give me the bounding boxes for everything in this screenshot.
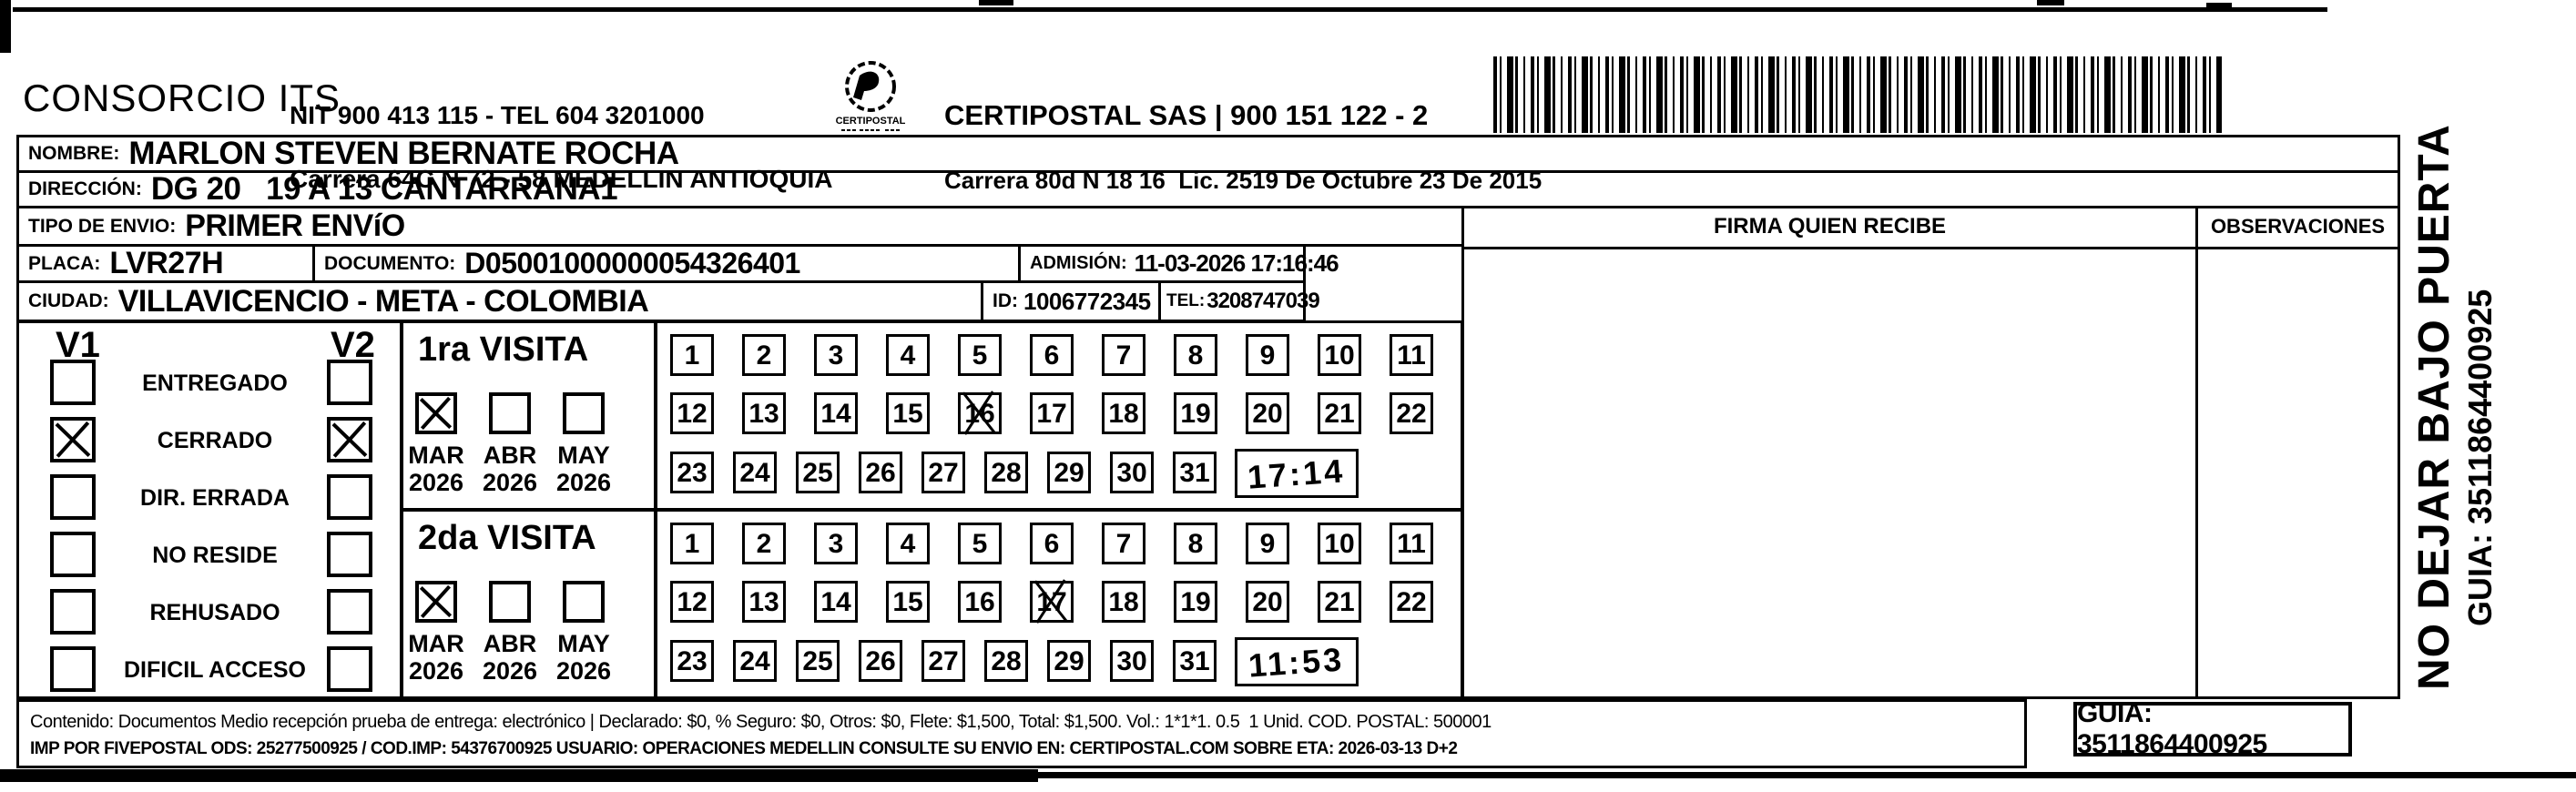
month-year: 2026 bbox=[481, 469, 539, 497]
visit2-day-8[interactable]: 8 bbox=[1174, 523, 1217, 564]
placa-cell: PLACA: LVR27H bbox=[16, 244, 315, 283]
status-row-dir-errada: DIR. ERRADA bbox=[19, 474, 400, 522]
firma-signature-area[interactable] bbox=[1464, 249, 2195, 696]
visit2-day-22[interactable]: 22 bbox=[1390, 581, 1433, 623]
placa-value: LVR27H bbox=[109, 246, 223, 281]
firma-header: FIRMA QUIEN RECIBE bbox=[1464, 208, 2195, 249]
v1-checkbox-rehusado[interactable] bbox=[50, 589, 96, 635]
observaciones-column: OBSERVACIONES bbox=[2195, 206, 2400, 699]
direccion-value: DG 20 19 A 13 CANTARRANA1 bbox=[151, 171, 617, 208]
ciudad-value: VILLAVICENCIO - META - COLOMBIA bbox=[118, 284, 649, 320]
visit1-day-16[interactable]: 16 bbox=[958, 392, 1002, 434]
footer-box: Contenido: Documentos Medio recepción pr… bbox=[16, 699, 2027, 768]
visit1-day-4[interactable]: 4 bbox=[886, 334, 930, 376]
month-year: 2026 bbox=[481, 657, 539, 685]
month-year: 2026 bbox=[407, 469, 465, 497]
tel-value: 3208747039 bbox=[1207, 289, 1319, 314]
visit1-panel: 1ra VISITA MAR2026ABR2026MAY2026 bbox=[401, 320, 657, 511]
visit2-day-23[interactable]: 23 bbox=[670, 640, 714, 682]
visit2-day-4[interactable]: 4 bbox=[886, 523, 930, 564]
v2-checkbox-entregado[interactable] bbox=[327, 360, 372, 405]
logo-caption: CERTIPOSTAL bbox=[836, 116, 906, 127]
visit2-day-1[interactable]: 1 bbox=[670, 523, 714, 564]
visit1-day-29[interactable]: 29 bbox=[1047, 452, 1091, 493]
status-label-dificil-acceso: DIFICIL ACCESO bbox=[106, 646, 324, 694]
visit2-day-11[interactable]: 11 bbox=[1390, 523, 1433, 564]
visit2-day-21[interactable]: 21 bbox=[1318, 581, 1361, 623]
visit2-month-checkbox-abr[interactable] bbox=[489, 581, 531, 623]
documento-label: DOCUMENTO: bbox=[324, 253, 455, 275]
visit1-day-26[interactable]: 26 bbox=[859, 452, 902, 493]
scan-artifact bbox=[979, 0, 1013, 5]
visit1-day-25[interactable]: 25 bbox=[796, 452, 840, 493]
month-label: MAR bbox=[407, 630, 465, 658]
month-label: MAY bbox=[555, 630, 613, 658]
status-row-dificil-acceso: DIFICIL ACCESO bbox=[19, 646, 400, 694]
visit2-day-2[interactable]: 2 bbox=[742, 523, 786, 564]
visit2-title: 2da VISITA bbox=[418, 519, 596, 558]
visit2-day-10[interactable]: 10 bbox=[1318, 523, 1361, 564]
visit1-title: 1ra VISITA bbox=[418, 330, 588, 370]
status-label-entregado: ENTREGADO bbox=[106, 360, 324, 407]
direccion-row: DIRECCIÓN: DG 20 19 A 13 CANTARRANA1 bbox=[16, 170, 2400, 208]
status-row-cerrado: CERRADO bbox=[19, 417, 400, 464]
visit1-day-15[interactable]: 15 bbox=[886, 392, 930, 434]
visit2-calendar: 1234567891011121314151617181920212223242… bbox=[655, 509, 1463, 699]
visit2-day-26[interactable]: 26 bbox=[859, 640, 902, 682]
observaciones-area[interactable] bbox=[2198, 249, 2398, 696]
month-label: MAY bbox=[555, 442, 613, 470]
v1-checkbox-dificil-acceso[interactable] bbox=[50, 646, 96, 692]
visit1-day-1[interactable]: 1 bbox=[670, 334, 714, 376]
visit2-day-27[interactable]: 27 bbox=[921, 640, 965, 682]
visit2-day-17[interactable]: 17 bbox=[1030, 581, 1074, 623]
nombre-row: NOMBRE: MARLON STEVEN BERNATE ROCHA bbox=[16, 135, 2400, 173]
status-row-no-reside: NO RESIDE bbox=[19, 532, 400, 579]
visit1-day-30[interactable]: 30 bbox=[1110, 452, 1154, 493]
tipo-envio-value: PRIMER ENVíO bbox=[185, 208, 404, 244]
footer-content-line: Contenido: Documentos Medio recepción pr… bbox=[30, 707, 2013, 736]
v2-checkbox-no-reside[interactable] bbox=[327, 532, 372, 577]
status-label-rehusado: REHUSADO bbox=[106, 589, 324, 636]
ciudad-label: CIUDAD: bbox=[28, 290, 109, 312]
v1-checkbox-dir-errada[interactable] bbox=[50, 474, 96, 520]
v1-checkbox-entregado[interactable] bbox=[50, 360, 96, 405]
visit1-day-3[interactable]: 3 bbox=[814, 334, 858, 376]
status-panel: V1 V2 ENTREGADOCERRADODIR. ERRADANO RESI… bbox=[16, 320, 402, 699]
visit2-day-20[interactable]: 20 bbox=[1246, 581, 1289, 623]
visit1-day-18[interactable]: 18 bbox=[1102, 392, 1145, 434]
nombre-value: MARLON STEVEN BERNATE ROCHA bbox=[128, 136, 678, 172]
bottom-bar-left bbox=[0, 769, 1038, 782]
tipo-envio-label: TIPO DE ENVIO: bbox=[28, 216, 176, 238]
month-year: 2026 bbox=[555, 469, 613, 497]
carrier-name-line: CERTIPOSTAL SAS | 900 151 122 - 2 bbox=[944, 98, 1542, 133]
admision-cell: ADMISIÓN: 11-03-2026 17:16:46 bbox=[1018, 244, 1306, 283]
shipping-label-scan: CONSORCIO ITS NIT 900 413 115 - TEL 604 … bbox=[0, 0, 2576, 792]
visit1-day-27[interactable]: 27 bbox=[921, 452, 965, 493]
visit2-day-29[interactable]: 29 bbox=[1047, 640, 1091, 682]
documento-value: D05001000000054326401 bbox=[464, 247, 800, 280]
observaciones-header: OBSERVACIONES bbox=[2198, 208, 2398, 249]
top-rule bbox=[13, 7, 2327, 12]
month-year: 2026 bbox=[407, 657, 465, 685]
status-row-rehusado: REHUSADO bbox=[19, 589, 400, 636]
month-label: ABR bbox=[481, 630, 539, 658]
visit1-day-12[interactable]: 12 bbox=[670, 392, 714, 434]
visit2-day-5[interactable]: 5 bbox=[958, 523, 1002, 564]
month-label: ABR bbox=[481, 442, 539, 470]
visit2-handwritten-time: 11:53 bbox=[1247, 636, 1346, 688]
visit2-day-24[interactable]: 24 bbox=[733, 640, 777, 682]
v2-checkbox-rehusado[interactable] bbox=[327, 589, 372, 635]
v2-checkbox-dificil-acceso[interactable] bbox=[327, 646, 372, 692]
visit2-panel: 2da VISITA MAR2026ABR2026MAY2026 bbox=[401, 509, 657, 699]
visit1-time-box: 17:14 bbox=[1235, 449, 1359, 498]
side-note-message: NO DEJAR BAJO PUERTA bbox=[2409, 144, 2460, 690]
scan-artifact bbox=[2037, 0, 2064, 5]
visit2-day-28[interactable]: 28 bbox=[984, 640, 1028, 682]
visit1-day-20[interactable]: 20 bbox=[1246, 392, 1289, 434]
visit1-day-28[interactable]: 28 bbox=[984, 452, 1028, 493]
month-year: 2026 bbox=[555, 657, 613, 685]
visit1-day-8[interactable]: 8 bbox=[1174, 334, 1217, 376]
visit2-day-30[interactable]: 30 bbox=[1110, 640, 1154, 682]
visit2-day-14[interactable]: 14 bbox=[814, 581, 858, 623]
visit2-day-19[interactable]: 19 bbox=[1174, 581, 1217, 623]
visit1-day-6[interactable]: 6 bbox=[1030, 334, 1074, 376]
visit1-day-5[interactable]: 5 bbox=[958, 334, 1002, 376]
visit1-day-2[interactable]: 2 bbox=[742, 334, 786, 376]
tel-cell: TEL: 3208747039 bbox=[1158, 280, 1306, 322]
ciudad-cell: CIUDAD: VILLAVICENCIO - META - COLOMBIA bbox=[16, 280, 983, 322]
visit1-day-10[interactable]: 10 bbox=[1318, 334, 1361, 376]
visit2-month-checkbox-mar[interactable] bbox=[415, 581, 457, 623]
visit2-day-16[interactable]: 16 bbox=[958, 581, 1002, 623]
visit1-day-17[interactable]: 17 bbox=[1030, 392, 1074, 434]
direccion-label: DIRECCIÓN: bbox=[28, 178, 142, 200]
admision-value: 11-03-2026 17:16:46 bbox=[1135, 249, 1339, 278]
firma-column: FIRMA QUIEN RECIBE bbox=[1461, 206, 2198, 699]
visit1-month-checkbox-may[interactable] bbox=[563, 392, 605, 434]
tipo-envio-row: TIPO DE ENVIO: PRIMER ENVíO bbox=[16, 206, 1464, 247]
visit2-day-7[interactable]: 7 bbox=[1102, 523, 1145, 564]
nombre-label: NOMBRE: bbox=[28, 143, 119, 165]
visit1-calendar: 1234567891011121314151617181920212223242… bbox=[655, 320, 1463, 511]
visit2-day-25[interactable]: 25 bbox=[796, 640, 840, 682]
sender-nit-line: NIT 900 413 115 - TEL 604 3201000 bbox=[290, 100, 832, 131]
bottom-bar-right bbox=[1034, 772, 2576, 778]
visit2-day-18[interactable]: 18 bbox=[1102, 581, 1145, 623]
visit1-day-11[interactable]: 11 bbox=[1390, 334, 1433, 376]
visit2-day-9[interactable]: 9 bbox=[1246, 523, 1289, 564]
admision-label: ADMISIÓN: bbox=[1030, 253, 1127, 274]
visit1-day-24[interactable]: 24 bbox=[733, 452, 777, 493]
visit1-day-23[interactable]: 23 bbox=[670, 452, 714, 493]
visit2-day-13[interactable]: 13 bbox=[742, 581, 786, 623]
side-note: NO DEJAR BAJO PUERTA GUIA: 3511864400925 bbox=[2409, 144, 2500, 690]
tel-label: TEL: bbox=[1166, 291, 1205, 311]
side-note-guia: GUIA: 3511864400925 bbox=[2460, 144, 2500, 690]
id-value: 1006772345 bbox=[1023, 288, 1151, 316]
month-label: MAR bbox=[407, 442, 465, 470]
placa-label: PLACA: bbox=[28, 253, 100, 275]
visit1-handwritten-time: 17:14 bbox=[1247, 448, 1347, 500]
visit1-day-7[interactable]: 7 bbox=[1102, 334, 1145, 376]
status-label-dir-errada: DIR. ERRADA bbox=[106, 474, 324, 522]
visit2-time-box: 11:53 bbox=[1235, 637, 1359, 686]
visit2-day-6[interactable]: 6 bbox=[1030, 523, 1074, 564]
certipostal-logo-icon: CERTIPOSTAL bbox=[834, 58, 907, 137]
visit2-day-12[interactable]: 12 bbox=[670, 581, 714, 623]
v1-checkbox-no-reside[interactable] bbox=[50, 532, 96, 577]
visit2-day-3[interactable]: 3 bbox=[814, 523, 858, 564]
status-label-no-reside: NO RESIDE bbox=[106, 532, 324, 579]
visit1-month-checkbox-mar[interactable] bbox=[415, 392, 457, 434]
visit2-day-31[interactable]: 31 bbox=[1173, 640, 1217, 682]
v2-checkbox-cerrado[interactable] bbox=[327, 417, 372, 462]
left-edge-mark bbox=[0, 0, 11, 53]
id-cell: ID: 1006772345 bbox=[981, 280, 1161, 322]
visit1-day-31[interactable]: 31 bbox=[1173, 452, 1217, 493]
documento-cell: DOCUMENTO: D05001000000054326401 bbox=[312, 244, 1021, 283]
visit2-day-15[interactable]: 15 bbox=[886, 581, 930, 623]
v1-checkbox-cerrado[interactable] bbox=[50, 417, 96, 462]
id-label: ID: bbox=[993, 290, 1018, 312]
scan-artifact bbox=[2206, 3, 2232, 7]
visit2-month-checkbox-may[interactable] bbox=[563, 581, 605, 623]
visit1-day-22[interactable]: 22 bbox=[1390, 392, 1433, 434]
status-row-entregado: ENTREGADO bbox=[19, 360, 400, 407]
visit1-day-19[interactable]: 19 bbox=[1174, 392, 1217, 434]
v2-checkbox-dir-errada[interactable] bbox=[327, 474, 372, 520]
footer-imp-line: IMP POR FIVEPOSTAL ODS: 25277500925 / CO… bbox=[30, 736, 2013, 762]
visit1-day-13[interactable]: 13 bbox=[742, 392, 786, 434]
visit1-day-14[interactable]: 14 bbox=[814, 392, 858, 434]
visit1-month-checkbox-abr[interactable] bbox=[489, 392, 531, 434]
barcode bbox=[1493, 56, 2222, 133]
visit1-day-21[interactable]: 21 bbox=[1318, 392, 1361, 434]
status-label-cerrado: CERRADO bbox=[106, 417, 324, 464]
visit1-day-9[interactable]: 9 bbox=[1246, 334, 1289, 376]
guia-number-box: GUIA: 3511864400925 bbox=[2073, 702, 2352, 756]
